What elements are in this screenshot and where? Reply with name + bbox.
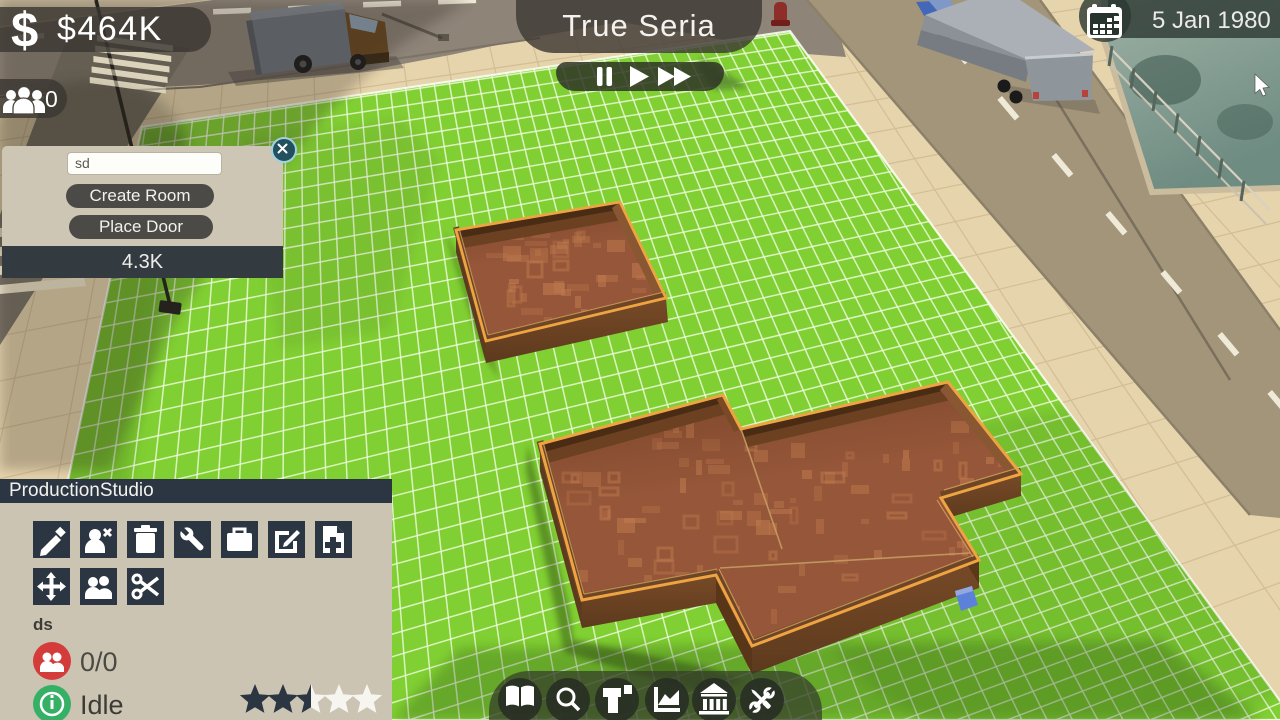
svg-text:Idle: Idle xyxy=(80,690,124,720)
svg-text:ds: ds xyxy=(33,615,53,634)
svg-text:0/0: 0/0 xyxy=(80,647,118,677)
